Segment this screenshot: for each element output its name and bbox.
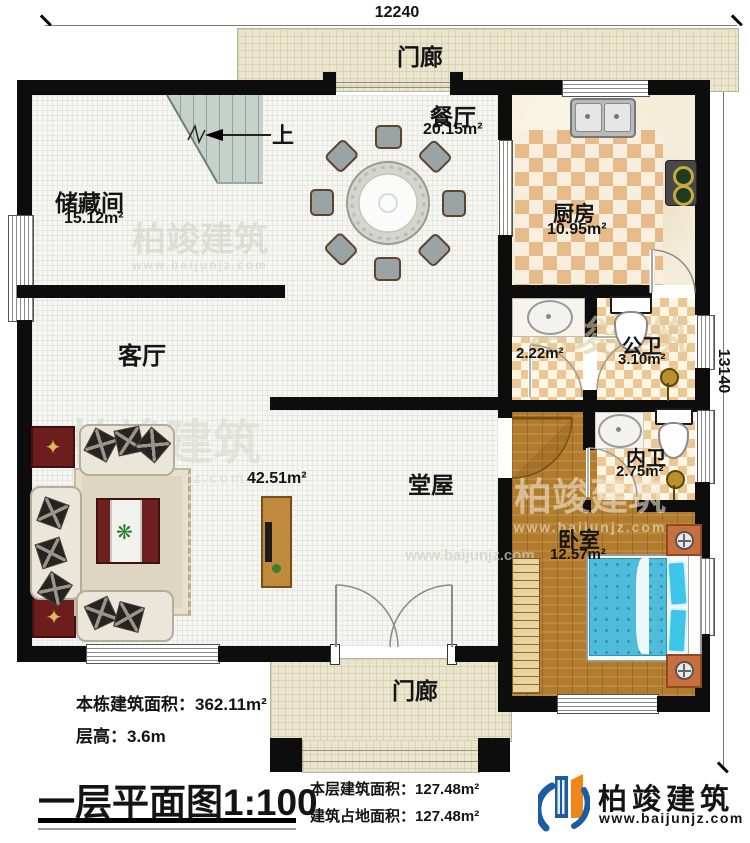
step-line [302,761,478,762]
drain [546,314,551,319]
plant-icon: ❋ [116,520,133,545]
shower-stem [673,485,675,500]
porch-steps [302,740,480,773]
tv-icon [265,522,272,562]
drain [616,427,621,432]
bedroom-window-bottom [557,694,659,714]
brand-logo-icon [538,770,590,832]
title-underline-thin [38,828,296,830]
floor-area-value: 127.48m² [415,781,479,798]
wall [498,95,512,140]
porch-column [478,738,510,772]
wall [323,72,336,95]
wall [498,410,512,418]
wardrobe [512,558,540,694]
wall [17,80,32,215]
lamp-icon [675,531,694,550]
lamp-icon [675,661,694,680]
shower-icon [666,470,685,489]
public-bath-window [697,315,715,370]
washroom-area: 2.22m² [516,345,564,362]
washbasin-icon [527,300,573,335]
kitchen-window [562,80,650,97]
wall [17,646,86,662]
right-dimension-label: 13140 [714,341,732,401]
porch-bottom-label: 门廊 [345,672,485,706]
private-bath-area: 2.75m² [616,463,664,480]
corner-cabinet: ✦ [31,426,75,468]
floor-area-line: 本层建筑面积：127.48m² [310,778,479,799]
top-dimension-label: 12240 [352,4,442,22]
wall [657,696,710,712]
wall [463,80,562,95]
drain [585,114,590,119]
hall-area: 42.51m² [247,470,307,488]
wall [498,696,557,712]
bed-sheet [636,558,649,654]
stairs-direction-arrow [183,122,283,152]
total-area-line: 本栋建筑面积：362.11m² [76,690,267,715]
title-text: 一层平面图 [38,782,223,823]
wall [450,72,463,95]
footprint-label: 建筑占地面积： [310,808,415,825]
kitchen-sliding-door [499,140,513,237]
floor-plan-canvas: 12240 13140 门廊 门廊 [0,0,750,843]
total-area-label: 本栋建筑面积： [76,695,195,714]
kitchen-area: 10.95m² [547,221,607,239]
nightstand [666,524,702,556]
footprint-line: 建筑占地面积：127.48m² [310,805,479,826]
wall [218,646,330,662]
plant-icon [272,564,281,573]
wall [637,500,695,512]
wall [583,298,597,337]
storage-area: 15.12m² [64,210,124,228]
floor-area-label: 本层建筑面积： [310,781,415,798]
floor-height-value: 3.6m [127,727,166,746]
drain [614,114,619,119]
wall [583,500,591,512]
door-post [330,644,340,665]
shower-stem [667,383,669,401]
living-window [86,644,220,664]
wall [17,320,32,662]
wall [498,298,512,410]
public-bath-area: 3.10m² [618,351,666,368]
shower-icon [660,368,679,387]
total-area-value: 362.11m² [195,695,267,714]
kitchen-sink-icon [570,98,636,138]
wall [270,397,512,410]
headboard [688,556,698,656]
floor-height-line: 层高：3.6m [76,722,166,747]
title-scale: 1:100 [223,782,318,823]
porch-column [270,738,302,772]
porch-top-label: 门廊 [350,38,490,72]
burner [673,185,694,206]
living-label: 客厅 [118,336,166,371]
bedroom-area: 12.57m² [550,546,606,563]
nightstand [666,654,702,688]
private-bath-window [697,410,715,484]
step-line [302,750,478,751]
wall [695,80,710,315]
pillow [667,608,688,654]
pillow [666,560,688,606]
floor-height-label: 层高： [76,727,127,746]
mattress [589,558,667,656]
dining-area: 20.15m² [423,121,483,139]
title-underline [38,818,296,823]
wall [17,285,285,298]
bed [586,554,702,662]
right-dimension-line [723,70,724,770]
brand-website: www.baijunjz.com [599,810,744,826]
burner [673,166,694,187]
footprint-value: 127.48m² [415,808,479,825]
wall [498,478,512,712]
wall [583,390,597,412]
stairs-up-label: 上 [272,118,294,150]
stove-icon [665,160,697,206]
tv-cabinet [261,496,292,588]
coffee-table: ❋ [96,498,160,564]
wall [695,368,710,410]
entry-threshold [336,82,450,88]
hall-label: 堂屋 [408,466,454,500]
storage-window [8,215,34,322]
top-dimension-line [45,25,737,26]
